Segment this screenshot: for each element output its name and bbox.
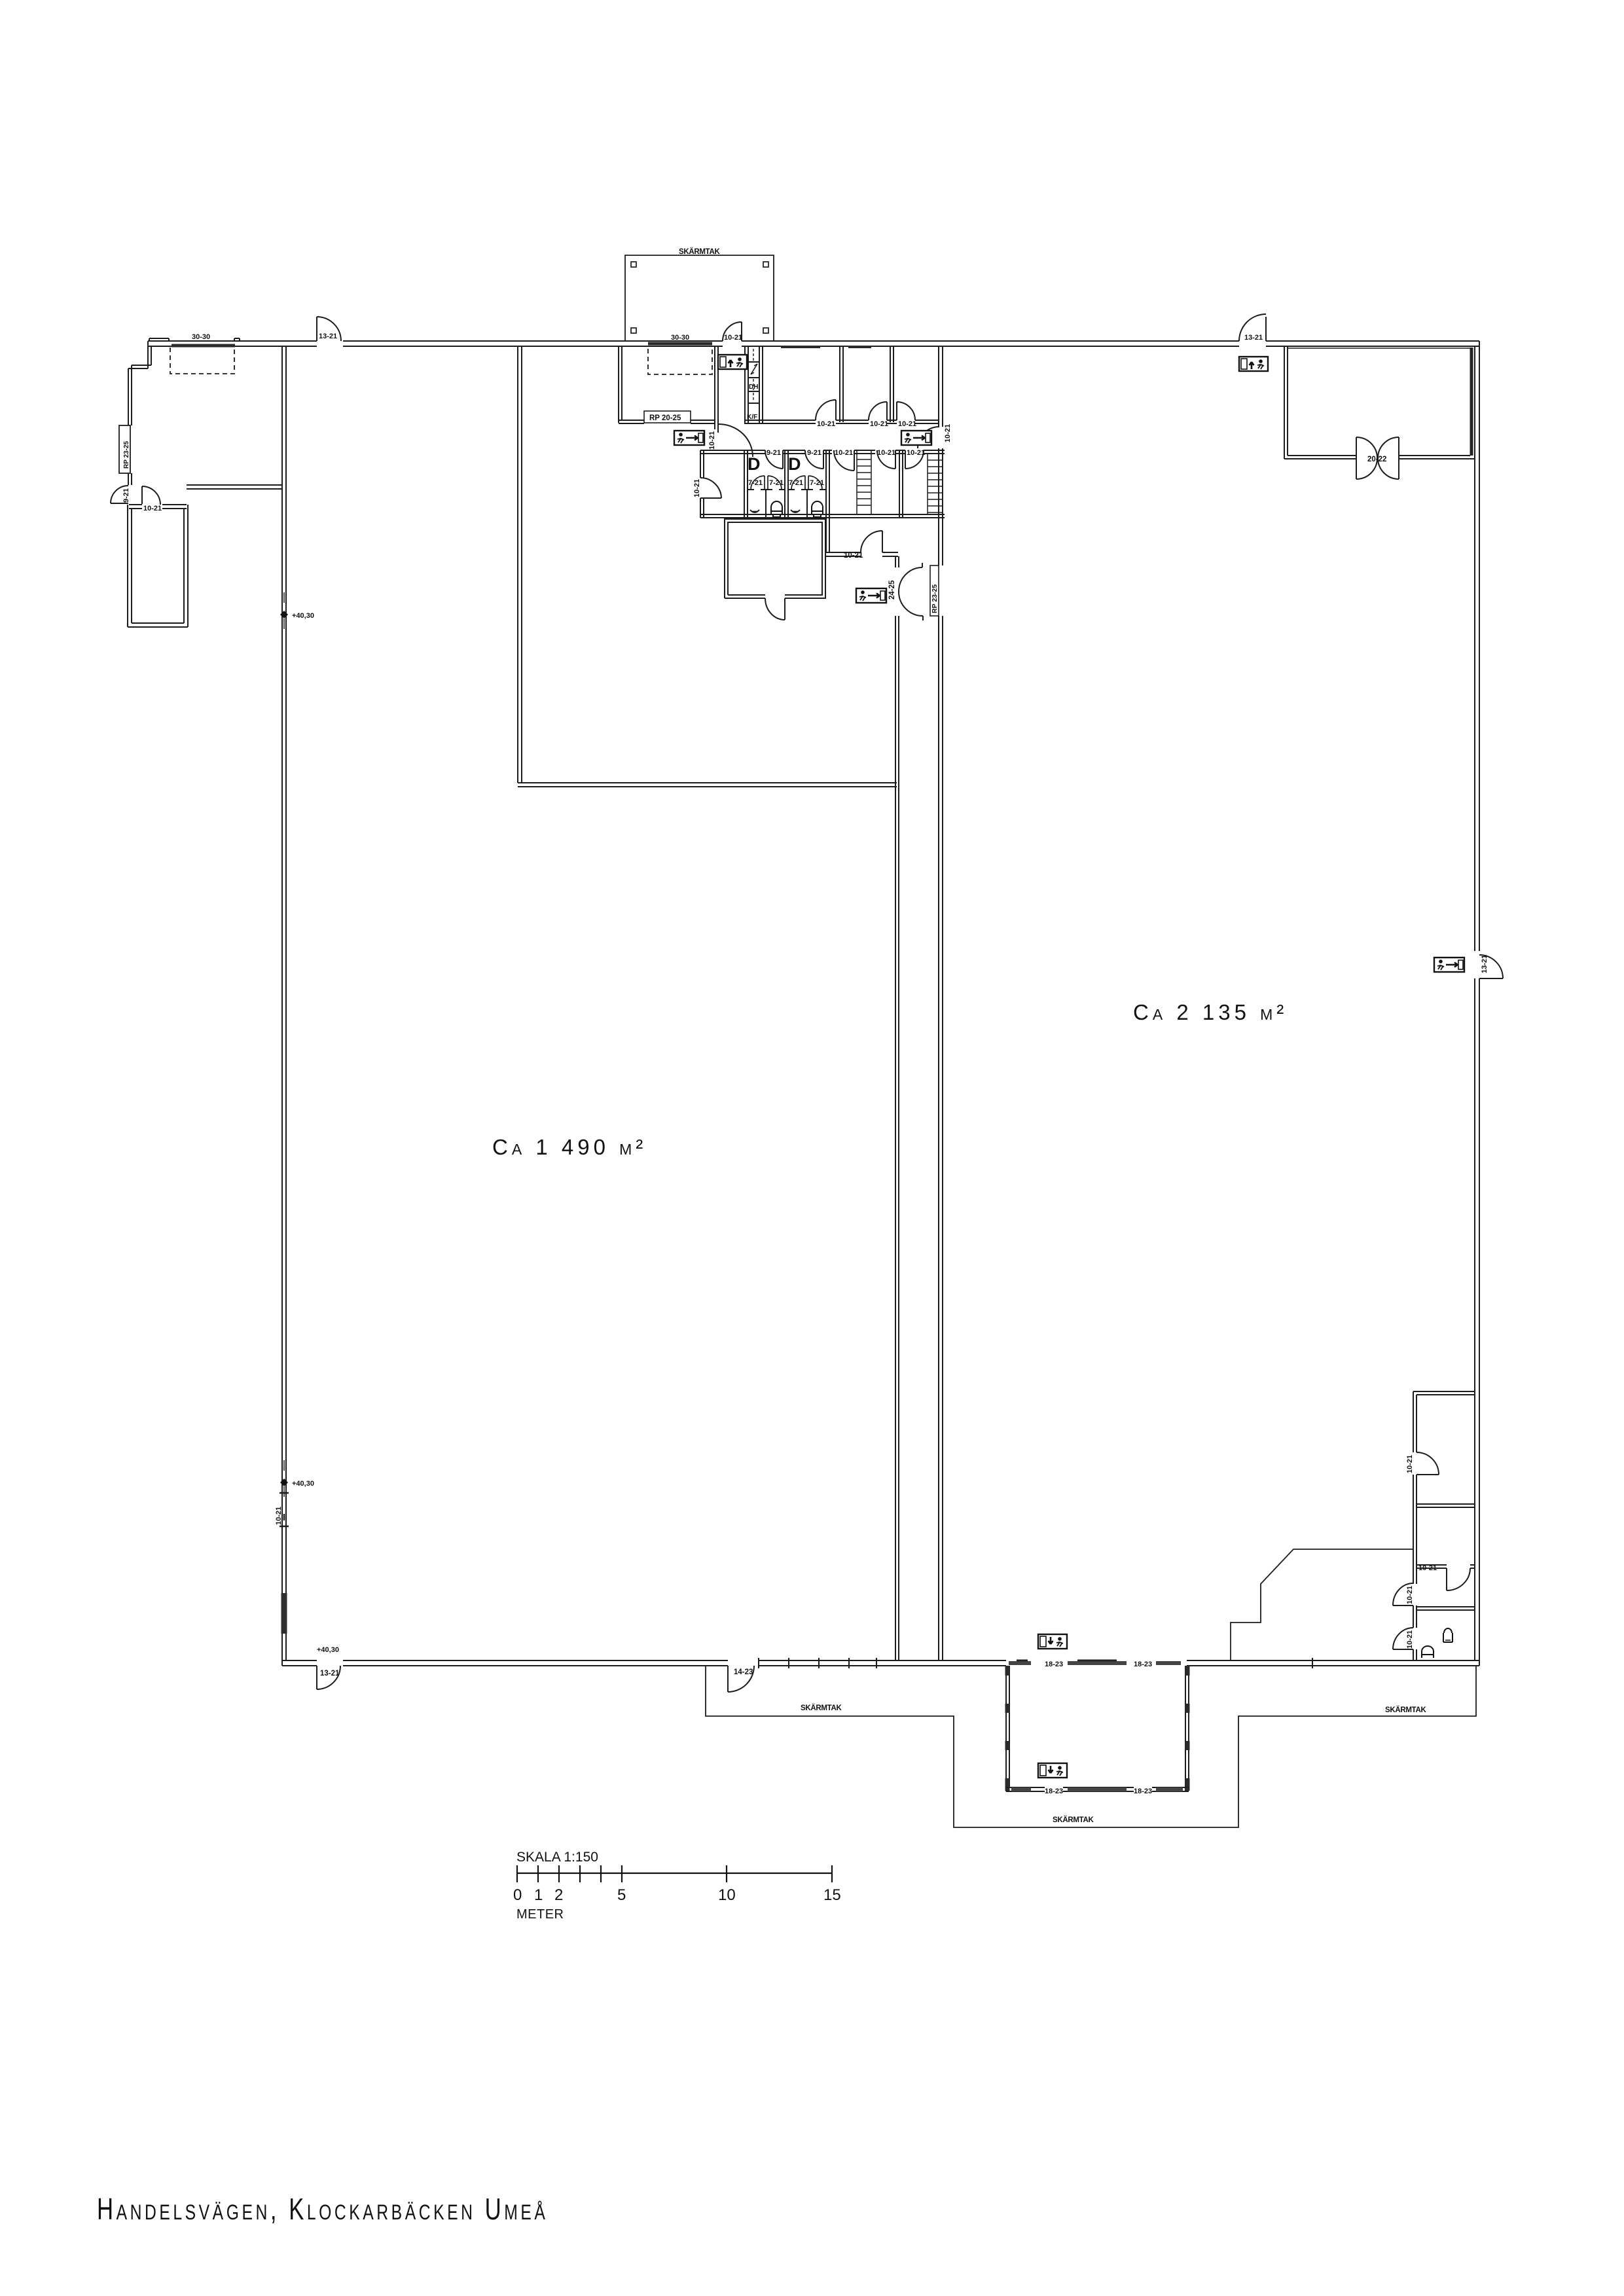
svg-text:10-21: 10-21 xyxy=(1418,1564,1437,1572)
svg-text:SKÄRMTAK: SKÄRMTAK xyxy=(679,247,721,256)
svg-text:10-21: 10-21 xyxy=(1406,1630,1414,1649)
svg-text:10-21: 10-21 xyxy=(877,449,895,457)
svg-text:30-30: 30-30 xyxy=(671,334,689,342)
svg-text:14-23: 14-23 xyxy=(734,1668,753,1676)
svg-text:10-21: 10-21 xyxy=(907,449,925,457)
svg-text:10: 10 xyxy=(718,1886,736,1904)
svg-text:SKALA 1:150: SKALA 1:150 xyxy=(516,1850,598,1865)
svg-text:D: D xyxy=(748,454,761,474)
svg-text:9-21: 9-21 xyxy=(122,488,130,503)
svg-text:DH: DH xyxy=(749,384,758,391)
svg-text:30-30: 30-30 xyxy=(192,333,210,341)
svg-text:D: D xyxy=(788,454,801,474)
svg-text:7-21: 7-21 xyxy=(769,479,784,487)
svg-text:Ca 2 135 m²: Ca 2 135 m² xyxy=(1133,1000,1288,1024)
svg-text:K/F: K/F xyxy=(747,414,757,421)
svg-text:10-21: 10-21 xyxy=(835,449,853,457)
svg-text:0: 0 xyxy=(513,1886,522,1904)
svg-text:7-21: 7-21 xyxy=(789,479,803,487)
svg-text:+40,30: +40,30 xyxy=(292,612,314,620)
svg-text:18-23: 18-23 xyxy=(1045,1660,1063,1668)
svg-text:Ca 1 490 m²: Ca 1 490 m² xyxy=(492,1135,647,1159)
svg-text:13-21: 13-21 xyxy=(320,1670,340,1677)
svg-text:10-21: 10-21 xyxy=(870,420,888,428)
svg-text:18-23: 18-23 xyxy=(1134,1787,1152,1795)
svg-text:SKÄRMTAK: SKÄRMTAK xyxy=(801,1704,842,1712)
svg-text:7-21: 7-21 xyxy=(748,479,763,487)
svg-text:RP 23-25: RP 23-25 xyxy=(931,584,939,613)
svg-text:5: 5 xyxy=(617,1886,626,1904)
svg-text:9-21: 9-21 xyxy=(767,449,781,457)
svg-text:2: 2 xyxy=(554,1886,563,1904)
svg-text:24-25: 24-25 xyxy=(888,580,896,600)
svg-text:+40,30: +40,30 xyxy=(292,1480,314,1488)
svg-text:SKÄRMTAK: SKÄRMTAK xyxy=(1385,1706,1427,1714)
svg-text:7-21: 7-21 xyxy=(810,479,824,487)
svg-text:13-21: 13-21 xyxy=(1244,334,1263,342)
svg-text:13-21: 13-21 xyxy=(1481,955,1489,973)
svg-text:METER: METER xyxy=(516,1907,564,1922)
svg-text:10-21: 10-21 xyxy=(817,420,835,428)
svg-text:10-21: 10-21 xyxy=(275,1507,283,1525)
svg-text:10-21: 10-21 xyxy=(708,431,716,450)
svg-text:Handelsvägen, Klockarbäcken Um: Handelsvägen, Klockarbäcken Umeå xyxy=(97,2192,548,2226)
svg-text:SKÄRMTAK: SKÄRMTAK xyxy=(1053,1816,1094,1824)
svg-text:10-21: 10-21 xyxy=(1406,1455,1414,1473)
svg-text:10-21: 10-21 xyxy=(1406,1586,1414,1604)
svg-text:20-22: 20-22 xyxy=(1367,456,1386,463)
svg-text:18-23: 18-23 xyxy=(1134,1660,1152,1668)
svg-text:10-21: 10-21 xyxy=(844,552,863,560)
svg-text:10-21: 10-21 xyxy=(944,424,952,442)
svg-text:RP 20-25: RP 20-25 xyxy=(649,414,681,422)
svg-text:10-21: 10-21 xyxy=(724,334,742,342)
svg-text:1: 1 xyxy=(534,1886,543,1904)
svg-text:9-21: 9-21 xyxy=(807,449,821,457)
svg-text:10-21: 10-21 xyxy=(143,505,162,512)
svg-text:10-21: 10-21 xyxy=(693,479,701,497)
svg-text:15: 15 xyxy=(823,1886,841,1904)
svg-text:10-21: 10-21 xyxy=(898,420,916,428)
svg-text:RP 23-25: RP 23-25 xyxy=(123,440,130,469)
svg-text:+40,30: +40,30 xyxy=(317,1646,339,1654)
svg-text:18-23: 18-23 xyxy=(1045,1787,1063,1795)
svg-text:13-21: 13-21 xyxy=(319,332,337,340)
